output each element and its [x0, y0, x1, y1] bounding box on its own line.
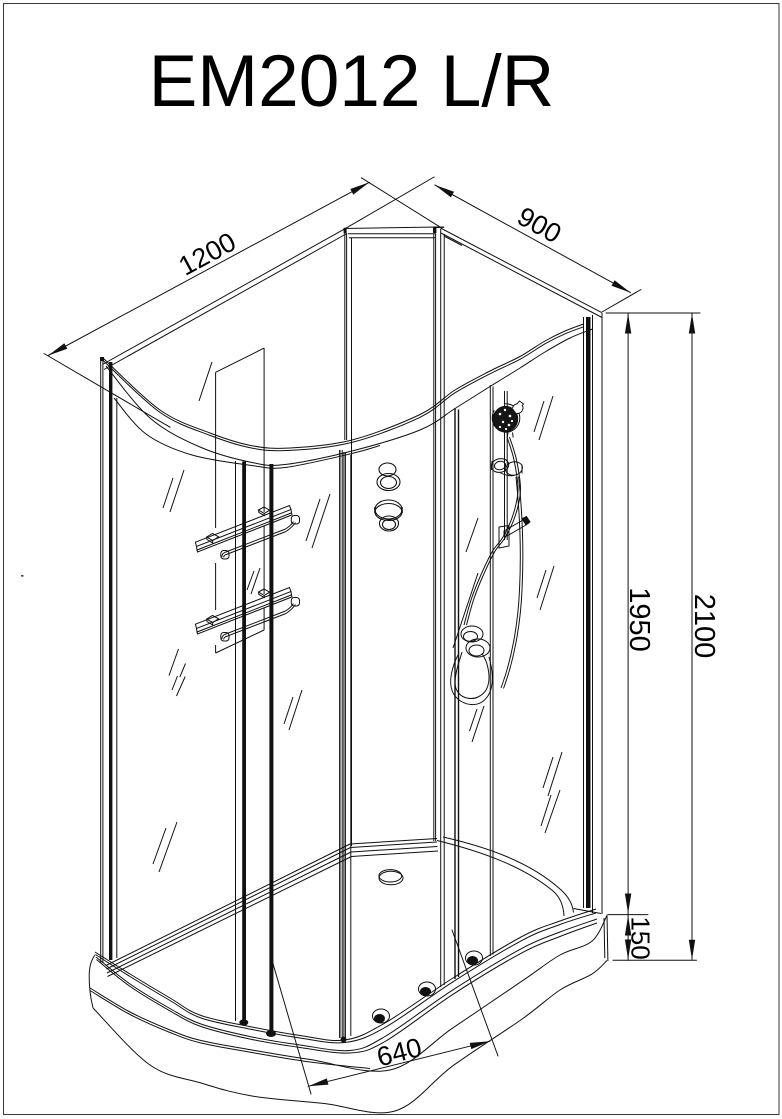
svg-text:2100: 2100 [688, 594, 720, 659]
svg-text:150: 150 [626, 916, 656, 959]
svg-text:EM2012 L/R: EM2012 L/R [149, 41, 555, 122]
svg-text:1950: 1950 [623, 587, 655, 652]
